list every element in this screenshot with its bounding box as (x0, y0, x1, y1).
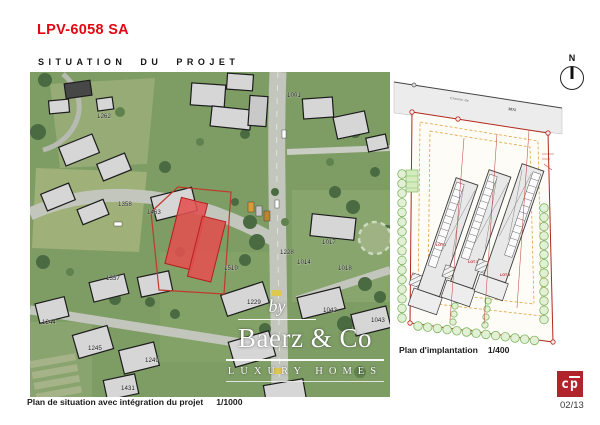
parcel-label: 1014 (297, 259, 311, 266)
plan-caption-text: Plan d'implantation (399, 345, 478, 355)
page-number: 02/13 (560, 400, 584, 411)
parcel-label: 1042 (323, 307, 337, 314)
lot-label: LOT 2 (468, 260, 478, 264)
map-caption: Plan de situation avec intégration du pr… (27, 397, 243, 407)
lot-label: LOT 3 (500, 273, 510, 277)
logo-letter-c: c (561, 377, 570, 392)
parcel-label: 1017 (322, 239, 336, 246)
architect-logo: c p (557, 371, 583, 397)
parcel-label: 1463 (147, 209, 161, 216)
parcel-label: 1249 (145, 357, 159, 364)
parcel-label: 1001 (287, 92, 301, 99)
parcel-label: 1228 (280, 249, 294, 256)
parcel-label: 1229 (247, 299, 261, 306)
north-arrow: N (558, 54, 586, 97)
parcel-label: 1245 (88, 345, 102, 352)
north-arrow-icon (558, 62, 586, 92)
parcel-label: 1018 (338, 265, 352, 272)
lot-label: LOT 1 (436, 243, 446, 247)
satellite-map: 1262100110171018146313581357151912281014… (30, 72, 390, 397)
parcel-label: 1431 (121, 385, 135, 392)
roundabout-garden (359, 222, 390, 254)
parcel-label: 1357 (106, 275, 120, 282)
site-plan: Chemin de 1071 (392, 58, 600, 350)
document-page: LPV-6058 SA SITUATION DU PROJET (0, 0, 600, 425)
site-plan-canvas: Chemin de 1071 (392, 58, 600, 350)
project-title: LPV-6058 SA (37, 22, 129, 38)
parcel-label: 1262 (97, 113, 111, 120)
north-label: N (558, 54, 586, 62)
plan-scale: 1/400 (488, 345, 510, 355)
map-scale: 1/1000 (216, 397, 242, 407)
logo-letter-p: p (570, 377, 579, 392)
map-caption-text: Plan de situation avec intégration du pr… (27, 397, 203, 407)
parcel-label: 1358 (118, 201, 132, 208)
parcel-label: 1043 (371, 317, 385, 324)
satellite-map-canvas: 1262100110171018146313581357151912281014… (30, 72, 390, 397)
parcel-label: 1244 (42, 319, 56, 326)
parcel-label: 1519 (224, 265, 238, 272)
plan-caption: Plan d'implantation 1/400 (399, 345, 509, 355)
green-strip (406, 170, 418, 192)
page-subtitle: SITUATION DU PROJET (38, 57, 239, 67)
